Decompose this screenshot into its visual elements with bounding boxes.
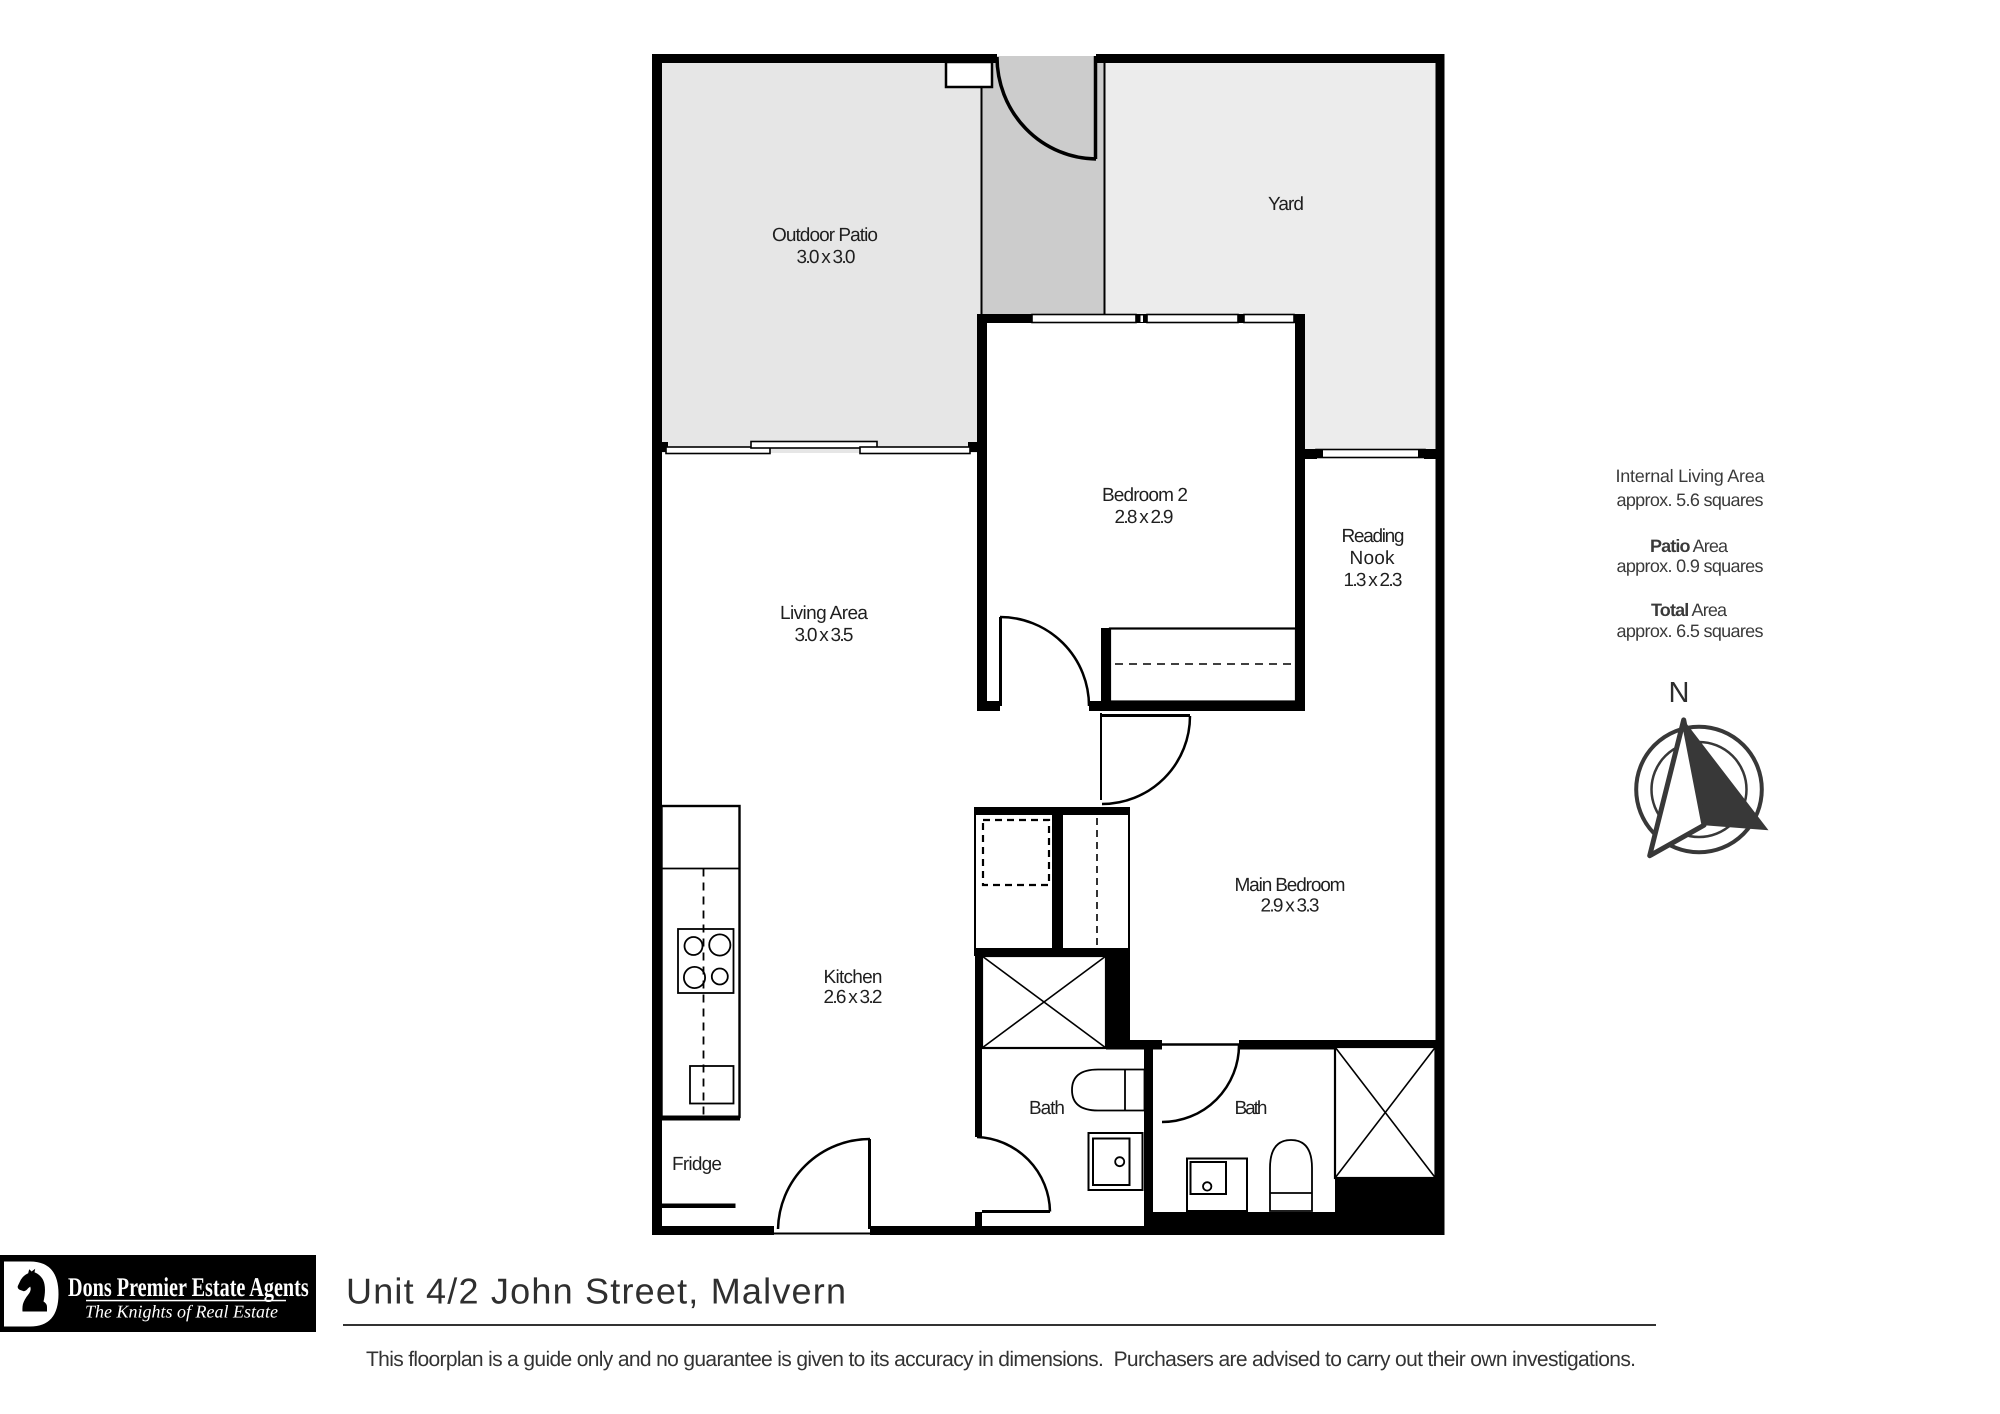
- svg-text:Reading: Reading: [1342, 526, 1405, 547]
- svg-text:3.0 x 3.0: 3.0 x 3.0: [797, 247, 856, 268]
- svg-text:Fridge: Fridge: [672, 1154, 722, 1175]
- svg-text:This floorplan is a guide only: This floorplan is a guide only and no gu…: [366, 1348, 1636, 1371]
- svg-text:2.9 x 3.3: 2.9 x 3.3: [1261, 896, 1320, 917]
- svg-text:Bath: Bath: [1029, 1098, 1065, 1119]
- svg-text:3.0 x 3.5: 3.0 x 3.5: [795, 625, 854, 646]
- svg-text:approx. 6.5 squares: approx. 6.5 squares: [1617, 621, 1764, 641]
- svg-text:2.6 x 3.2: 2.6 x 3.2: [824, 987, 883, 1008]
- svg-text:Patio Area: Patio Area: [1650, 536, 1729, 556]
- svg-text:N: N: [1669, 677, 1690, 709]
- svg-text:Dons Premier Estate Agents: Dons Premier Estate Agents: [68, 1272, 309, 1302]
- svg-text:Bedroom 2: Bedroom 2: [1102, 485, 1188, 506]
- svg-text:Outdoor Patio: Outdoor Patio: [772, 225, 878, 246]
- svg-text:Nook: Nook: [1350, 548, 1396, 569]
- svg-text:Main Bedroom: Main Bedroom: [1235, 875, 1346, 896]
- svg-text:Kitchen: Kitchen: [824, 967, 883, 988]
- svg-text:Internal Living Area: Internal Living Area: [1616, 466, 1766, 486]
- svg-text:Unit 4/2 John Street, Malvern: Unit 4/2 John Street, Malvern: [346, 1271, 846, 1312]
- svg-text:2.8 x 2.9: 2.8 x 2.9: [1115, 507, 1174, 528]
- svg-text:Yard: Yard: [1268, 194, 1304, 215]
- svg-text:approx. 0.9 squares: approx. 0.9 squares: [1617, 556, 1764, 576]
- svg-text:Total Area: Total Area: [1651, 600, 1728, 620]
- svg-text:Bath: Bath: [1235, 1098, 1268, 1119]
- svg-text:approx. 5.6 squares: approx. 5.6 squares: [1617, 490, 1764, 510]
- svg-text:1.3 x 2.3: 1.3 x 2.3: [1344, 570, 1403, 591]
- svg-text:Living Area: Living Area: [780, 603, 868, 624]
- svg-text:The Knights of Real Estate: The Knights of Real Estate: [85, 1302, 278, 1322]
